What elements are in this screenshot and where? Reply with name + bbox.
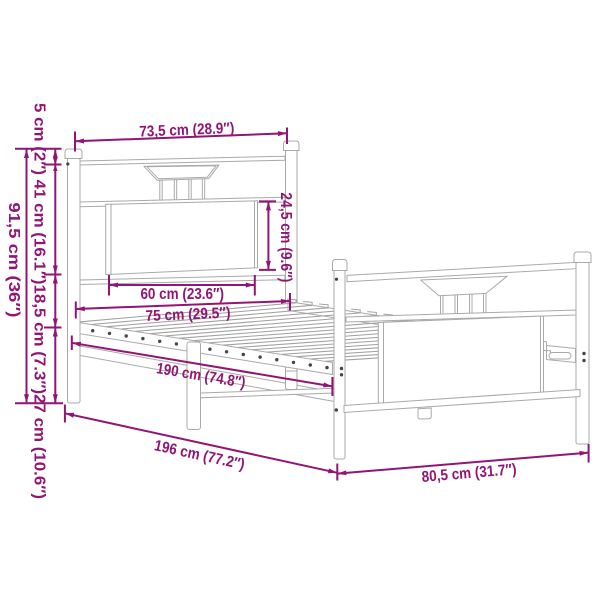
svg-text:91,5 cm (36″): 91,5 cm (36″) bbox=[5, 202, 22, 317]
svg-text:60 cm (23.6″): 60 cm (23.6″) bbox=[140, 286, 224, 303]
svg-text:5 cm (2″) 41 cm (16.1″)18,5 cm: 5 cm (2″) 41 cm (16.1″)18,5 cm (7.3″)27 … bbox=[31, 103, 48, 499]
svg-text:75 cm (29.5″): 75 cm (29.5″) bbox=[145, 305, 231, 325]
svg-text:24,5 cm (9.6″): 24,5 cm (9.6″) bbox=[277, 192, 294, 282]
